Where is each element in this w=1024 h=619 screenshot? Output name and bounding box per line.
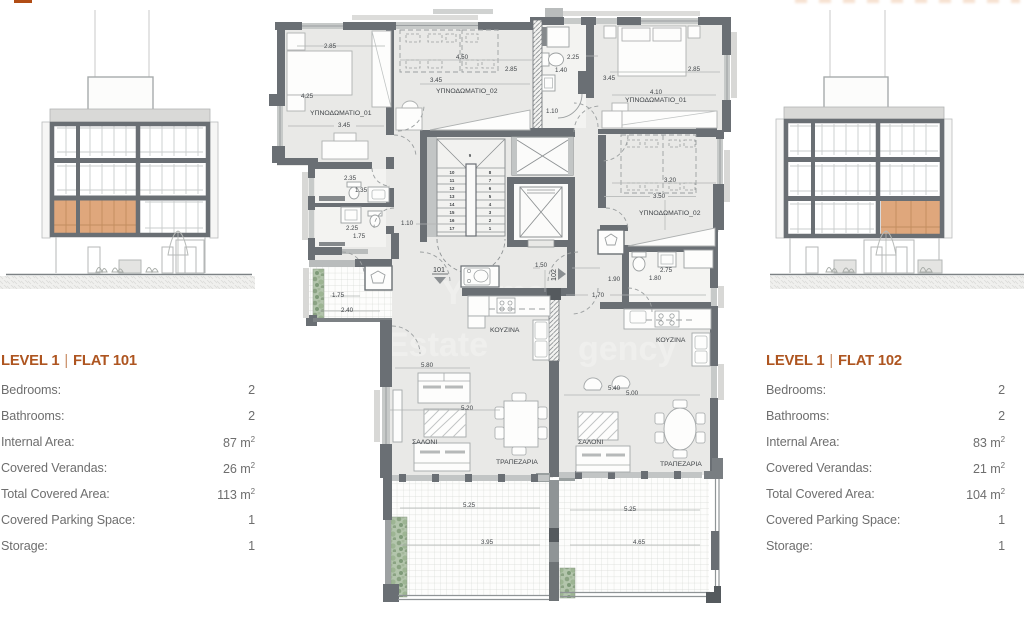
svg-text:4.10: 4.10 [650,89,663,96]
svg-text:ΚΟΥΖΙΝΑ: ΚΟΥΖΙΝΑ [656,337,686,344]
svg-text:1.10: 1.10 [546,108,559,115]
svg-text:2.85: 2.85 [324,43,337,50]
svg-text:ΤΡΑΠΕΖΑΡΙΑ: ΤΡΑΠΕΖΑΡΙΑ [496,459,538,466]
svg-text:13: 13 [450,194,455,199]
svg-text:1.90: 1.90 [608,276,621,283]
svg-text:3.45: 3.45 [430,77,443,84]
svg-text:ΥΠΝΟΔΩΜΑΤΙΟ_01: ΥΠΝΟΔΩΜΑΤΙΟ_01 [625,97,687,104]
svg-text:1.10: 1.10 [401,220,414,227]
svg-text:1.40: 1.40 [555,67,568,74]
svg-text:2.75: 2.75 [660,267,673,274]
svg-text:Estate: Estate [386,326,488,364]
svg-text:ΥΠΝΟΔΩΜΑΤΙΟ_01: ΥΠΝΟΔΩΜΑΤΙΟ_01 [310,110,372,117]
svg-text:5.25: 5.25 [463,502,476,509]
svg-text:1.50: 1.50 [535,262,548,269]
svg-text:5.40: 5.40 [608,385,621,392]
svg-text:2.25: 2.25 [567,54,580,61]
svg-text:1.35: 1.35 [355,187,368,194]
svg-text:3.45: 3.45 [338,122,351,129]
svg-text:gency: gency [578,330,676,368]
svg-text:3.45: 3.45 [603,75,616,82]
svg-text:3.95: 3.95 [481,539,494,546]
svg-text:4.65: 4.65 [633,539,646,546]
svg-text:AY S: AY S [295,585,380,619]
svg-text:1.75: 1.75 [353,233,366,240]
svg-text:1.70: 1.70 [592,292,605,299]
svg-text:2.40: 2.40 [341,307,354,314]
svg-text:2.85: 2.85 [505,66,518,73]
svg-text:ΣΑΛΟΝΙ: ΣΑΛΟΝΙ [578,439,603,446]
svg-text:1.75: 1.75 [332,292,345,299]
svg-text:102: 102 [549,269,558,281]
svg-text:17: 17 [450,226,455,231]
svg-text:ΚΟΥΖΙΝΑ: ΚΟΥΖΙΝΑ [490,327,520,334]
svg-text:5.80: 5.80 [421,362,434,369]
svg-text:10: 10 [450,170,455,175]
svg-text:14: 14 [450,202,455,207]
svg-text:5.25: 5.25 [624,506,637,513]
svg-text:3.50: 3.50 [653,193,666,200]
svg-text:101: 101 [433,265,445,274]
svg-text:5.00: 5.00 [626,390,639,397]
svg-text:2.25: 2.25 [346,225,359,232]
svg-text:5.20: 5.20 [461,405,474,412]
svg-text:11: 11 [450,178,455,183]
svg-text:12: 12 [450,186,455,191]
svg-text:4.50: 4.50 [456,54,469,61]
svg-text:1.80: 1.80 [649,275,662,282]
svg-text:ΣΑΛΟΝΙ: ΣΑΛΟΝΙ [412,439,437,446]
svg-text:ΥΠΝΟΔΩΜΑΤΙΟ_02: ΥΠΝΟΔΩΜΑΤΙΟ_02 [639,210,701,217]
svg-text:2.85: 2.85 [688,66,701,73]
svg-text:2.35: 2.35 [344,175,357,182]
svg-text:ΥΠΝΟΔΩΜΑΤΙΟ_02: ΥΠΝΟΔΩΜΑΤΙΟ_02 [436,88,498,95]
svg-text:16: 16 [450,218,455,223]
svg-text:15: 15 [450,210,455,215]
svg-text:ΤΡΑΠΕΖΑΡΙΑ: ΤΡΑΠΕΖΑΡΙΑ [660,461,702,468]
svg-text:3.20: 3.20 [664,177,677,184]
svg-text:4.25: 4.25 [301,93,314,100]
